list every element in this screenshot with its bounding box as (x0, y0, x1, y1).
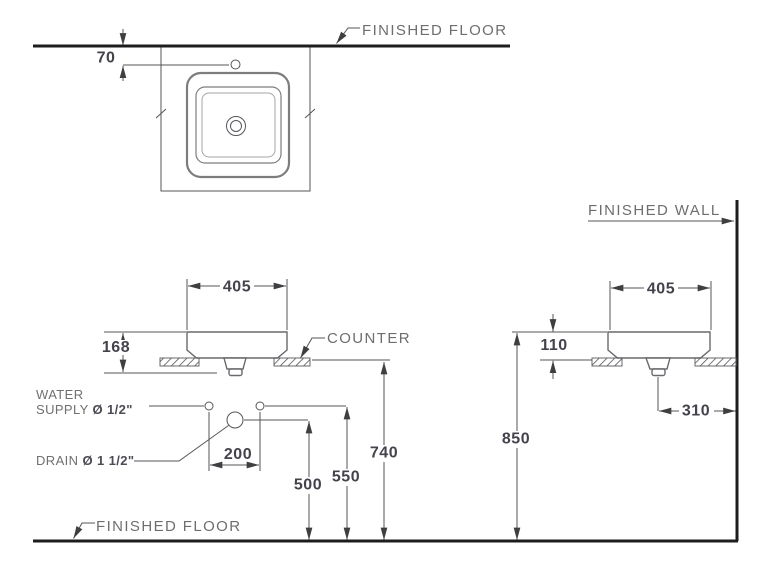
dim-supply-spacing-text: 200 (224, 446, 252, 463)
dim-rim-depth-front-text: 168 (102, 339, 130, 356)
side-basin-body (608, 332, 710, 358)
floor-top-leader (337, 28, 361, 44)
plan-basin-bowl-edge (202, 93, 275, 157)
plan-drain-outer (227, 117, 246, 136)
technical-drawing: 70 FINISHED FLOOR 405 168 COUNTER (0, 0, 773, 575)
drain-size-text: Ø 1 1/2" (82, 453, 134, 468)
dim-basin-width-front-text: 405 (223, 279, 251, 296)
front-basin-body (187, 332, 287, 358)
side-drain-flange (646, 358, 670, 369)
dim-counter-height-text: 740 (370, 445, 398, 462)
drain-prefix-text: DRAIN (36, 453, 82, 468)
water-supply-label-line1: WATER (36, 387, 84, 402)
dim-basin-height-side-text: 110 (540, 337, 567, 354)
dim-basin-width-side-text: 405 (647, 281, 675, 298)
water-supply-label-line2: SUPPLY Ø 1/2" (36, 402, 133, 417)
finished-wall-label: FINISHED WALL (588, 202, 721, 219)
side-counter-hatch-left (592, 358, 622, 366)
floor-bottom-leader (74, 523, 96, 539)
side-elevation: FINISHED WALL 405 110 850 310 (498, 200, 737, 541)
dim-supply-height-text: 550 (332, 469, 360, 486)
plan-drain-inner (231, 121, 242, 132)
drawing-canvas: 70 FINISHED FLOOR 405 168 COUNTER (0, 0, 773, 575)
front-counter-hatch-left (160, 358, 199, 366)
dim-faucet-offset-text: 70 (97, 50, 116, 67)
supply-prefix-text: SUPPLY (36, 402, 93, 417)
supply-size-text: Ø 1/2" (93, 402, 133, 417)
plan-basin-inner-rim (196, 87, 281, 163)
front-drain-stub (229, 369, 242, 376)
counter-leader (301, 338, 326, 358)
front-elevation: 405 168 COUNTER WATER SUPPLY Ø 1/2" DRAI… (36, 279, 411, 540)
dim-drain-height-text: 500 (294, 477, 322, 494)
front-drain-flange (224, 358, 246, 369)
side-drain-stub (652, 369, 665, 376)
finished-floor-top-label: FINISHED FLOOR (362, 22, 507, 39)
supply-point-left (205, 402, 213, 410)
dim-drain-wall-offset-text: 310 (682, 403, 710, 420)
finished-floor-top: FINISHED FLOOR (33, 22, 510, 46)
plan-faucet-hole (231, 60, 240, 69)
drain-point (227, 412, 243, 428)
drain-leader (134, 426, 229, 462)
front-counter-hatch-right (274, 358, 310, 366)
counter-label: COUNTER (327, 330, 411, 347)
side-counter-hatch-right (695, 358, 736, 366)
finished-floor-bottom-label: FINISHED FLOOR (96, 518, 241, 535)
dim-rim-height-text: 850 (502, 431, 530, 448)
supply-point-right (256, 402, 264, 410)
drain-label: DRAIN Ø 1 1/2" (36, 453, 134, 468)
finished-floor-bottom: FINISHED FLOOR (33, 518, 738, 541)
plan-view: 70 (97, 29, 315, 191)
